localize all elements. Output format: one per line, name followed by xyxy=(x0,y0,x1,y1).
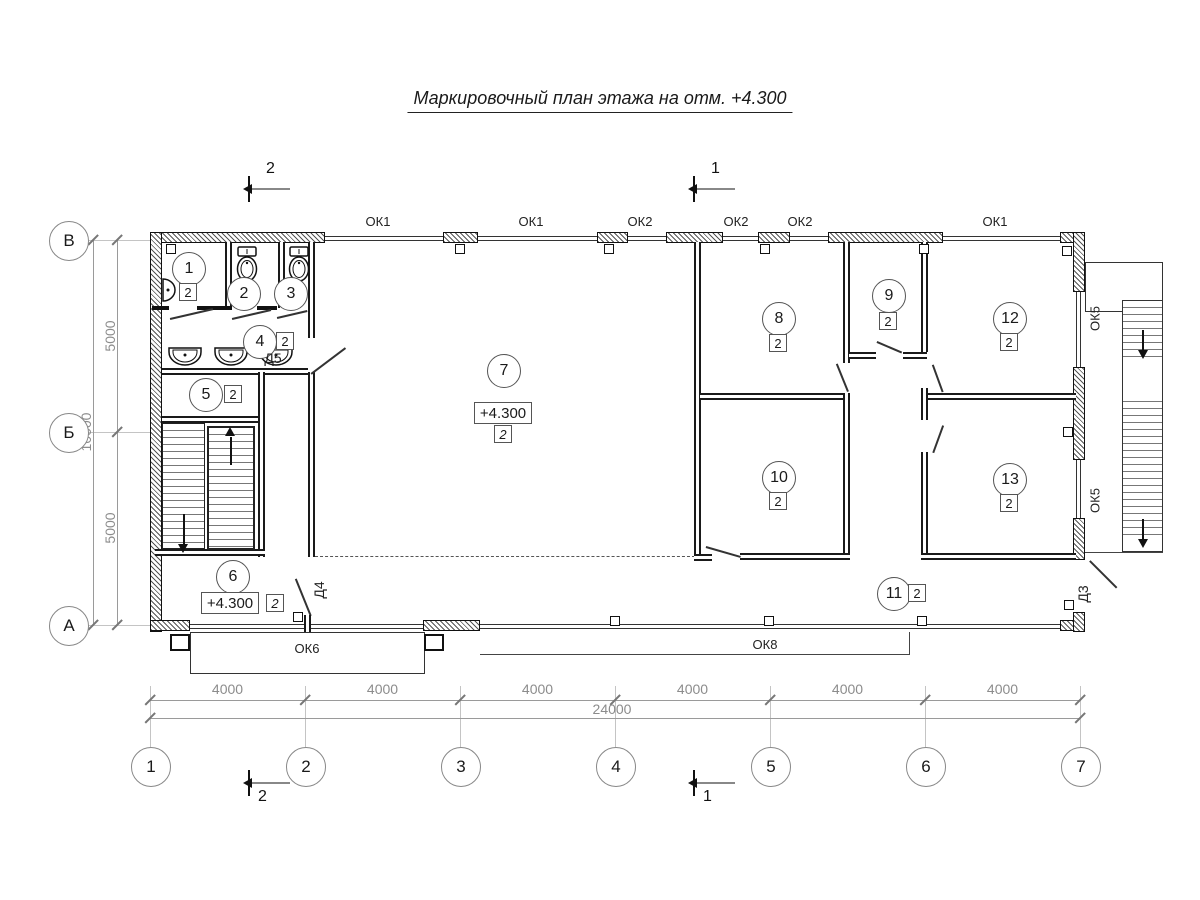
axis-extension-line xyxy=(88,240,150,241)
window-ok2 xyxy=(790,236,828,241)
section-mark-1-top: 1 xyxy=(687,168,747,212)
section-mark-1-bottom: 1 xyxy=(687,762,747,806)
stairwell-wall xyxy=(155,549,265,556)
room-circle-3: 3 xyxy=(274,277,308,311)
interior-wall xyxy=(921,553,1076,560)
section-arrow-icon xyxy=(243,184,252,194)
room-circle-7: 7 xyxy=(487,354,521,388)
window-label-ok1: ОК1 xyxy=(353,214,403,229)
room-type-square: 2 xyxy=(276,332,294,350)
interior-wall xyxy=(162,368,308,375)
exterior-wall xyxy=(150,620,190,631)
column-marker xyxy=(764,616,774,626)
column-marker xyxy=(293,612,303,622)
arrow-down-icon xyxy=(178,544,188,553)
room-circle-2: 2 xyxy=(227,277,261,311)
column-marker xyxy=(1062,246,1072,256)
interior-wall xyxy=(694,242,701,560)
section-arrow-icon xyxy=(243,778,252,788)
window-label-ok2: ОК2 xyxy=(775,214,825,229)
axis-circle-b: Б xyxy=(49,413,89,453)
column-marker xyxy=(919,244,929,254)
room-circle-6: 6 xyxy=(216,560,250,594)
window-ok1 xyxy=(478,236,597,241)
door-leaf-line-d4 xyxy=(295,578,311,616)
window-ok5 xyxy=(1076,460,1081,518)
interior-wall-stub xyxy=(903,352,927,359)
room-type-square: 2 xyxy=(879,312,897,330)
interior-wall xyxy=(740,553,850,560)
interior-wall xyxy=(843,242,850,363)
exterior-wall-pier xyxy=(758,232,790,243)
door-leaf-line xyxy=(932,364,943,392)
section-arrow-icon xyxy=(688,184,697,194)
section-line xyxy=(695,188,735,190)
stair-direction-arrow xyxy=(183,514,185,546)
room-circle-9: 9 xyxy=(872,279,906,313)
room-type-square: 2 xyxy=(224,385,242,403)
exterior-wall xyxy=(150,232,325,243)
room-circle-1: 1 xyxy=(172,252,206,286)
door-leaf-line xyxy=(277,310,308,318)
dimension-line xyxy=(150,718,1080,719)
dimension-value: 4000 xyxy=(662,681,723,697)
door-leaf-line xyxy=(170,308,213,319)
axis-extension-line xyxy=(88,432,150,433)
stair-direction-arrow xyxy=(1142,519,1144,541)
interior-wall xyxy=(700,393,846,400)
interior-wall-stub xyxy=(304,615,311,632)
exterior-wall-left xyxy=(150,232,162,632)
door-label-d4: Д4 xyxy=(311,575,327,605)
column-marker xyxy=(1063,427,1073,437)
dimension-value: 4000 xyxy=(507,681,568,697)
arrow-down-icon xyxy=(1138,539,1148,548)
porch-column xyxy=(170,634,190,651)
axis-circle-1: 1 xyxy=(131,747,171,787)
floor-plan-canvas: Маркировочный план этажа на отм. +4.300 … xyxy=(0,0,1200,900)
section-number: 2 xyxy=(266,160,275,178)
drawing-title: Маркировочный план этажа на отм. +4.300 xyxy=(407,88,792,113)
axis-circle-2: 2 xyxy=(286,747,326,787)
column-marker xyxy=(455,244,465,254)
door-label-d3: Д3 xyxy=(1075,579,1091,609)
window-extent-line xyxy=(909,632,910,655)
exterior-wall-pier xyxy=(1073,367,1085,460)
section-mark-2-top: 2 xyxy=(242,168,302,212)
dimension-value: 4000 xyxy=(972,681,1033,697)
section-number: 1 xyxy=(711,160,720,178)
axis-circle-a: А xyxy=(49,606,89,646)
door-leaf-line-d3 xyxy=(1089,560,1117,588)
axis-circle-7: 7 xyxy=(1061,747,1101,787)
room-type-square: 2 xyxy=(769,492,787,510)
section-line xyxy=(250,188,290,190)
stairwell-wall xyxy=(162,416,258,423)
stair-base-line xyxy=(1085,552,1163,553)
window-label-ok5: ОК5 xyxy=(1088,297,1103,341)
exterior-wall-pier xyxy=(1073,612,1085,632)
window-ok2 xyxy=(723,236,758,241)
window-ok2 xyxy=(628,236,666,241)
room-circle-13: 13 xyxy=(993,463,1027,497)
interior-wall xyxy=(843,393,850,560)
interior-wall xyxy=(921,242,928,352)
column-marker xyxy=(1064,600,1074,610)
room-type-square: 2 xyxy=(266,594,284,612)
elevation-mark: +4.300 xyxy=(201,592,259,614)
window-label-ok6: ОК6 xyxy=(277,641,337,656)
axis-circle-5: 5 xyxy=(751,747,791,787)
section-line xyxy=(695,782,735,784)
room-type-square: 2 xyxy=(908,584,926,602)
zone-boundary-dashed-line xyxy=(315,556,695,557)
axis-extension-line xyxy=(88,625,150,626)
room-type-square: 2 xyxy=(1000,333,1018,351)
window-label-ok1: ОК1 xyxy=(506,214,556,229)
section-number: 1 xyxy=(703,788,712,806)
axis-circle-4: 4 xyxy=(596,747,636,787)
exterior-wall-pier xyxy=(597,232,628,243)
dimension-value: 5000 xyxy=(102,498,118,558)
interior-wall-stub xyxy=(849,352,876,359)
room-circle-5: 5 xyxy=(189,378,223,412)
window-label-ok5: ОК5 xyxy=(1088,479,1103,523)
column-marker xyxy=(917,616,927,626)
exterior-wall-pier xyxy=(443,232,478,243)
room-type-square: 2 xyxy=(769,334,787,352)
section-line xyxy=(250,782,290,784)
room-type-square: 2 xyxy=(179,283,197,301)
room-circle-11: 11 xyxy=(877,577,911,611)
axis-extension-line xyxy=(770,686,771,747)
window-extent-line xyxy=(480,654,909,655)
interior-wall xyxy=(921,393,1076,400)
interior-wall xyxy=(308,372,315,557)
dimension-total: 24000 xyxy=(582,701,642,717)
room-circle-8: 8 xyxy=(762,302,796,336)
window-ok1 xyxy=(325,236,443,241)
sink-icon xyxy=(213,346,249,368)
exterior-wall-pier xyxy=(423,620,480,631)
column-marker xyxy=(166,244,176,254)
axis-circle-3: 3 xyxy=(441,747,481,787)
stair-direction-arrow xyxy=(1142,330,1144,352)
room-type-square: 2 xyxy=(494,425,512,443)
window-ok1 xyxy=(943,236,1060,241)
sink-icon xyxy=(167,346,203,368)
section-arrow-icon xyxy=(688,778,697,788)
axis-circle-v: В xyxy=(49,221,89,261)
dimension-value: 4000 xyxy=(817,681,878,697)
window-label-ok2: ОК2 xyxy=(711,214,761,229)
elevation-mark: +4.300 xyxy=(474,402,532,424)
column-marker xyxy=(760,244,770,254)
column-marker xyxy=(610,616,620,626)
window-label-ok1: ОК1 xyxy=(970,214,1020,229)
dimension-value: 4000 xyxy=(352,681,413,697)
axis-circle-6: 6 xyxy=(906,747,946,787)
arrow-up-icon xyxy=(225,427,235,436)
room-circle-10: 10 xyxy=(762,461,796,495)
axis-extension-line xyxy=(925,686,926,747)
door-label-d5: Д5 xyxy=(258,350,288,366)
stair-direction-arrow xyxy=(230,437,232,465)
room-circle-12: 12 xyxy=(993,302,1027,336)
door-leaf-line xyxy=(932,425,943,453)
interior-wall-stub xyxy=(921,388,928,420)
door-leaf-line xyxy=(232,309,271,319)
dimension-value: 5000 xyxy=(102,306,118,366)
arrow-down-icon xyxy=(1138,350,1148,359)
door-leaf-line xyxy=(877,341,902,353)
interior-wall xyxy=(921,452,928,560)
window-label-ok2: ОК2 xyxy=(615,214,665,229)
section-number: 2 xyxy=(258,788,267,806)
stairwell-wall xyxy=(258,372,265,557)
exterior-wall-pier xyxy=(1073,232,1085,292)
porch-column xyxy=(424,634,444,651)
room-type-square: 2 xyxy=(1000,494,1018,512)
window-ok5 xyxy=(1076,292,1081,367)
axis-extension-line xyxy=(305,686,306,747)
wc-stall-front xyxy=(152,306,169,310)
door-leaf-line xyxy=(836,363,849,391)
column-marker xyxy=(604,244,614,254)
window-label-ok8: ОК8 xyxy=(735,637,795,652)
dimension-value: 4000 xyxy=(197,681,258,697)
door-leaf-line-d5 xyxy=(311,347,346,374)
axis-extension-line xyxy=(460,686,461,747)
interior-wall-stub xyxy=(694,554,712,561)
